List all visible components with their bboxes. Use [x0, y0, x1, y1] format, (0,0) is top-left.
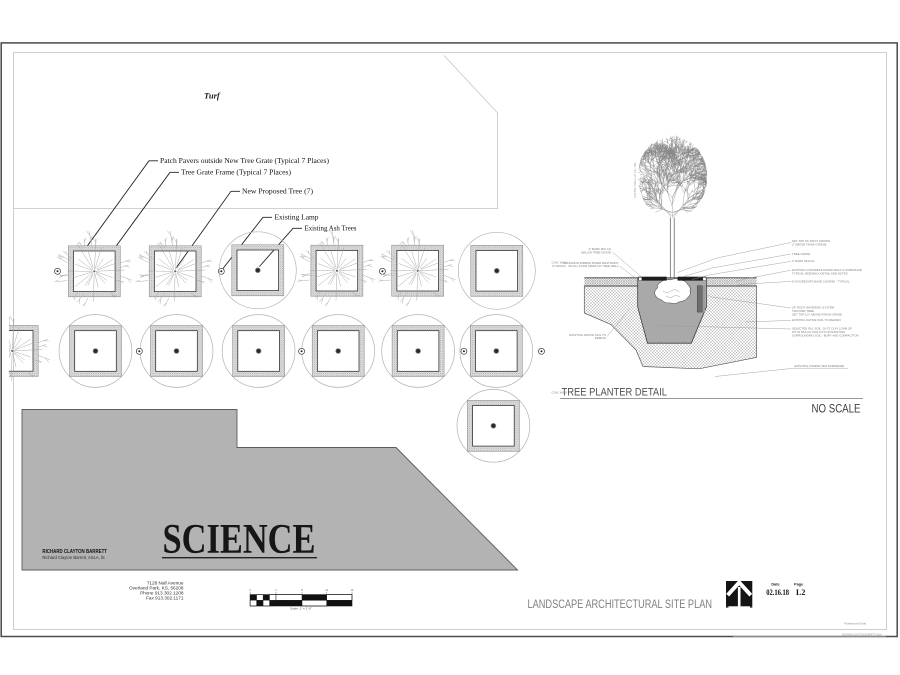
svg-text:ON ALL FOUR SIDES OF TREE WELL: ON ALL FOUR SIDES OF TREE WELL — [568, 264, 619, 268]
svg-text:EXISTING COMPACTED SUBGRADE: EXISTING COMPACTED SUBGRADE — [795, 364, 845, 368]
svg-text:Date: Date — [771, 582, 779, 586]
svg-text:Tree Grate Frame (Typical 7 Pl: Tree Grate Frame (Typical 7 Places) — [181, 168, 292, 177]
svg-text:2″ BARK MULCH: 2″ BARK MULCH — [792, 259, 814, 263]
svg-text:LANDSCAPE ARCHITECTURAL SITE P: LANDSCAPE ARCHITECTURAL SITE PLAN — [528, 599, 713, 611]
svg-text:TREE PLANTER DETAIL: TREE PLANTER DETAIL — [562, 387, 668, 399]
svg-text:02.16.18: 02.16.18 — [766, 588, 789, 597]
svg-text:New Proposed Tree (7): New Proposed Tree (7) — [242, 187, 314, 196]
svg-text:Professional Seal: Professional Seal — [844, 622, 866, 626]
svg-text:Fax 913.302.1171: Fax 913.302.1171 — [146, 596, 184, 601]
svg-text:Existing Ash Trees: Existing Ash Trees — [305, 224, 357, 233]
svg-text:NO SCALE: NO SCALE — [812, 402, 861, 416]
svg-text:Existing Lamp: Existing Lamp — [275, 213, 319, 222]
svg-text:BELOW TREE GRATE: BELOW TREE GRATE — [582, 250, 612, 254]
svg-text:SCIENCE: SCIENCE — [163, 517, 316, 563]
svg-text:Page: Page — [794, 582, 803, 586]
svg-text:TYPICAL SIDEWALK DETAIL AND NO: TYPICAL SIDEWALK DETAIL AND NOTES — [792, 271, 848, 275]
svg-text:Patch Pavers outside New Tree: Patch Pavers outside New Tree Grate (Typ… — [160, 156, 330, 165]
svg-text:6″ AGGREGATE BASE COURSE - TYP: 6″ AGGREGATE BASE COURSE - TYPICAL — [792, 279, 850, 283]
svg-text:SURROUNDING SOIL - BURY AND CO: SURROUNDING SOIL - BURY AND COMPACTION — [792, 334, 859, 338]
svg-text:SET TOP 1/2″ ABOVE FINISH GRAD: SET TOP 1/2″ ABOVE FINISH GRADE — [792, 313, 842, 317]
svg-text:L2: L2 — [796, 588, 805, 597]
svg-text:RICHARD CLAYTON BARRETT ASLA: RICHARD CLAYTON BARRETT ASLA — [842, 634, 882, 637]
svg-text:REMAIN: REMAIN — [595, 336, 606, 340]
svg-text:EXISTING TREE 2-1/2″ CAL. MIN.: EXISTING TREE 2-1/2″ CAL. MIN. — [633, 162, 637, 198]
svg-text:Richard Clayton Barrett, ASLA,: Richard Clayton Barrett, ASLA, llc — [42, 555, 105, 560]
svg-text:2″ ABOVE FINISH GRADE: 2″ ABOVE FINISH GRADE — [792, 243, 827, 247]
svg-text:Scale: 1″ = 1’-0″: Scale: 1″ = 1’-0″ — [290, 606, 311, 610]
svg-text:Turf: Turf — [204, 91, 221, 101]
svg-text:EXISTING NATIVE SOIL TO REMAIN: EXISTING NATIVE SOIL TO REMAIN — [792, 318, 841, 322]
svg-text:TREE GRATE: TREE GRATE — [792, 252, 810, 256]
